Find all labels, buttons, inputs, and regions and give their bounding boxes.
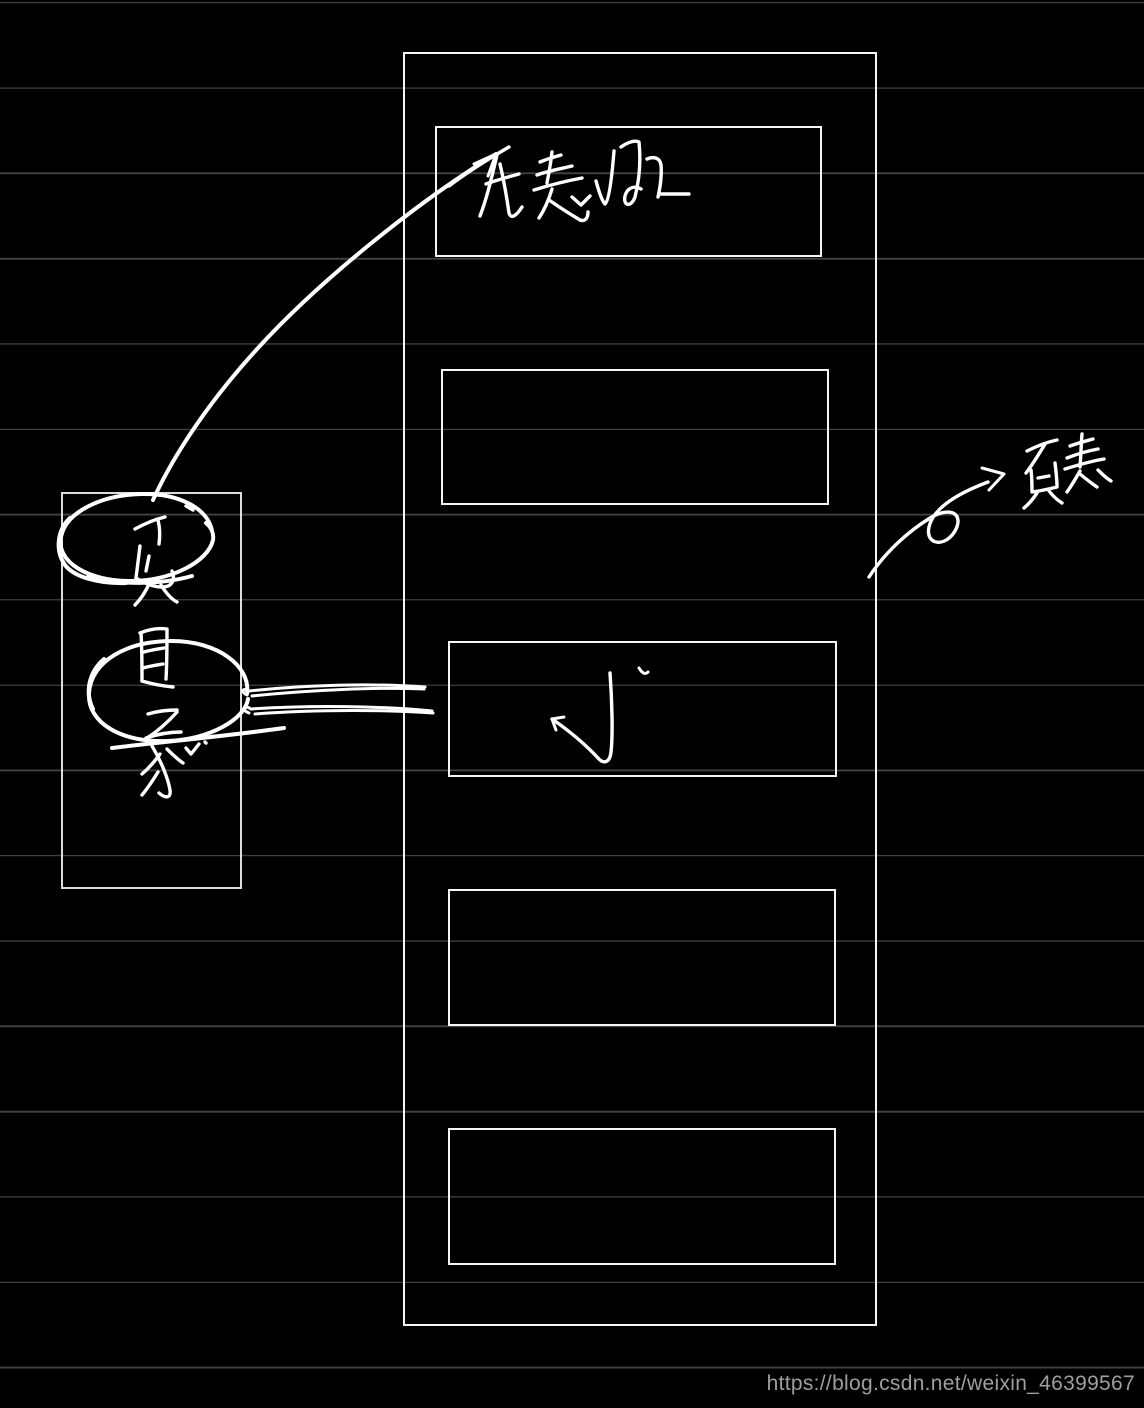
loop-arrow-to-page-table-label — [869, 468, 1004, 577]
whiteboard-canvas: https://blog.csdn.net/weixin_46399567 — [0, 0, 1144, 1408]
arrow-directory-to-entry — [153, 154, 496, 500]
handwriting-page-table — [1024, 434, 1111, 508]
check-arrow-in-slot-3 — [552, 668, 648, 762]
handwriting-directory-chars — [140, 629, 206, 797]
sketch-overlay — [0, 0, 1144, 1408]
handwriting-page-table-entry — [449, 141, 689, 220]
watermark-url: https://blog.csdn.net/weixin_46399567 — [767, 1372, 1135, 1396]
double-line-connector — [243, 685, 433, 714]
handwriting-page-char — [135, 506, 193, 605]
